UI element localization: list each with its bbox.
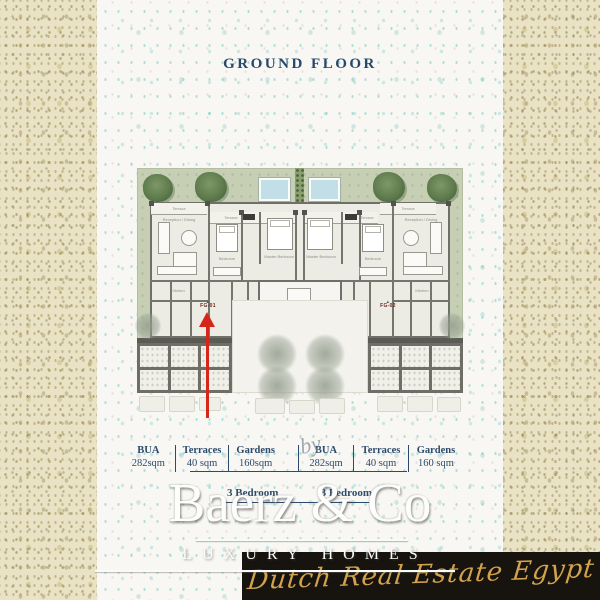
spec-terraces: Terraces 40 sqm [175, 445, 229, 472]
tree-icon [427, 174, 457, 202]
unit-label-fg01: ▲ FG-01 [190, 300, 226, 309]
kitchen-island [157, 266, 197, 275]
red-arrow-icon [199, 312, 215, 327]
paving-slab [437, 397, 461, 412]
spec-group-right: BUA 282sqm Terraces 40 sqm Gardens 160 s… [298, 445, 463, 472]
spec-gardens: Gardens 160 sqm [408, 445, 463, 472]
tree-icon [195, 172, 227, 202]
room-label: Reception / Dining [393, 217, 449, 222]
pool-right [309, 178, 340, 201]
paving-slab [377, 396, 403, 412]
dining-table [158, 222, 170, 254]
room-label: Terrace [347, 215, 387, 220]
spec-group-left: BUA 282sqm Terraces 40 sqm Gardens 160sq… [122, 445, 282, 472]
room-label: Bedroom [359, 256, 387, 261]
room-label: Terrace [151, 206, 207, 211]
wall [341, 212, 343, 264]
room-label: Reception / Dining [151, 217, 207, 222]
room-label: Kitchen [409, 288, 435, 293]
tree-icon [143, 174, 173, 202]
floor-plan: ▲ FG-01 ▲ FG-02 Terrace Terrace Terrace … [137, 168, 463, 420]
paving-slab [289, 400, 315, 414]
bed [267, 218, 293, 250]
paving-slab [169, 396, 195, 412]
room-label: Master Bedroom [261, 254, 297, 259]
closet [213, 267, 241, 276]
dining-table [430, 222, 442, 254]
room-label: Terrace [380, 206, 436, 211]
red-arrow-line [206, 326, 209, 418]
bed [216, 224, 238, 252]
unit-label-fg02: ▲ FG-02 [370, 300, 406, 309]
wall [303, 212, 305, 280]
round-table [403, 230, 419, 246]
courtyard [232, 300, 368, 393]
paving-slab [199, 397, 221, 411]
room-label: Kitchen [165, 288, 191, 293]
kitchen-island [403, 266, 443, 275]
room-label: Bedroom [213, 256, 241, 261]
tree-icon [439, 312, 465, 340]
paving-slab [407, 396, 433, 412]
pergola-right [368, 338, 463, 393]
brand-tagline: LUXURY HOMES [97, 546, 503, 564]
spec-gardens: Gardens 160sqm [228, 445, 282, 472]
spec-bua: BUA 282sqm [122, 445, 175, 472]
wall [295, 212, 297, 280]
column [302, 210, 307, 215]
paving-slab [319, 398, 345, 414]
room-label: Master Bedroom [303, 254, 339, 259]
room-label: Terrace [211, 215, 251, 220]
tree-icon [135, 312, 161, 340]
flyer-page: GROUND FLOOR [0, 0, 600, 600]
wall [241, 212, 243, 280]
pool-left [259, 178, 290, 201]
round-table [181, 230, 197, 246]
page-title: GROUND FLOOR [97, 56, 503, 73]
wall [392, 202, 394, 338]
paving-slab [255, 398, 285, 414]
column [293, 210, 298, 215]
pergola-left [137, 338, 232, 393]
bed [307, 218, 333, 250]
tree-icon [373, 172, 405, 202]
closet [359, 267, 387, 276]
brand-divider-line [196, 539, 408, 541]
brand-underline [95, 570, 455, 572]
spec-terraces: Terraces 40 sqm [353, 445, 408, 472]
bed [362, 224, 384, 252]
column [446, 201, 451, 206]
brand-logo-text: Baerz & Co [97, 472, 503, 534]
wall [369, 280, 371, 338]
paving-slab [139, 396, 165, 412]
